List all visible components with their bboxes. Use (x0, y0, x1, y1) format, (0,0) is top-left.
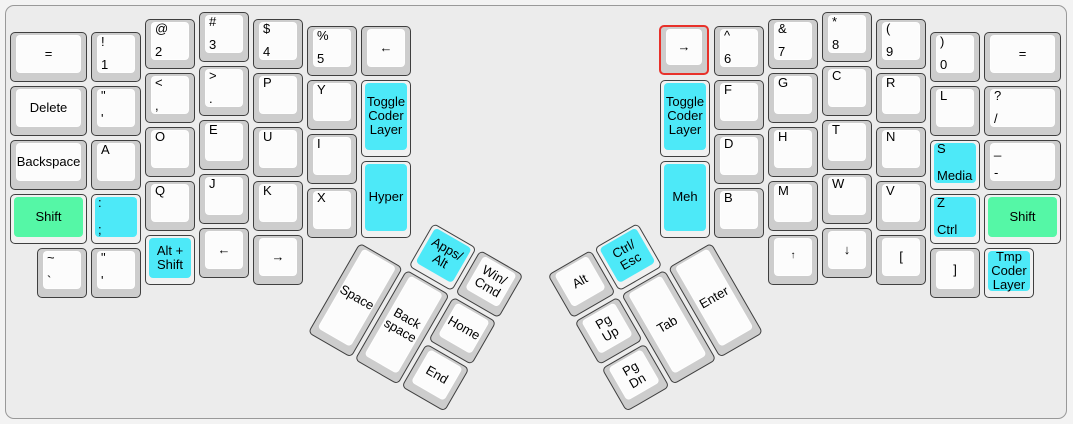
key-s-media[interactable]: SMedia (930, 140, 980, 190)
key-asterisk-8[interactable]: *8 (822, 12, 872, 62)
keycap-surface: R (882, 76, 920, 114)
key-legend: [ (883, 239, 919, 275)
key-legend-bottom: 8 (832, 38, 839, 53)
key-legend-top: V (886, 184, 895, 199)
keycap-surface: M (774, 184, 812, 222)
key-percent-5[interactable]: %5 (307, 26, 357, 76)
key-legend: → (260, 239, 296, 275)
key-legend-top: ( (886, 22, 890, 37)
keycap-surface: N (882, 130, 920, 168)
key-legend-bottom: . (209, 92, 213, 107)
keycap-surface: <, (151, 76, 189, 114)
key-legend: Tmp Coder Layer (988, 251, 1030, 291)
keycap-surface: "' (97, 251, 135, 289)
keycap-surface: B (720, 191, 758, 229)
key-left-arrow-bottom[interactable]: ← (199, 228, 249, 278)
keycap-surface: ← (367, 29, 405, 67)
key-p[interactable]: P (253, 73, 303, 123)
keycap-surface: P (259, 76, 297, 114)
key-legend-top: % (317, 29, 329, 44)
key-legend-top: * (832, 15, 837, 30)
key-legend-top: J (209, 177, 216, 192)
key-legend-top: Z (937, 196, 945, 211)
key-question-slash[interactable]: ?/ (984, 86, 1061, 136)
key-k[interactable]: K (253, 181, 303, 231)
keycap-surface: _- (990, 143, 1055, 181)
key-d[interactable]: D (714, 134, 764, 184)
keycap-surface: A (97, 143, 135, 181)
key-g[interactable]: G (768, 73, 818, 123)
key-l[interactable]: L (930, 86, 980, 136)
key-shift-left[interactable]: Shift (10, 194, 87, 244)
key-legend-top: " (101, 89, 106, 104)
key-h[interactable]: H (768, 127, 818, 177)
key-down-arrow[interactable]: ↓ (822, 228, 872, 278)
keycap-surface: X (313, 191, 351, 229)
keycap-surface: → (666, 29, 702, 65)
keycap-surface: %5 (313, 29, 351, 67)
keycap-surface: T (828, 123, 866, 161)
keycap-surface: C (828, 69, 866, 107)
keycap-surface: J (205, 177, 243, 215)
key-legend-top: U (263, 130, 272, 145)
keycap-surface: @2 (151, 22, 189, 60)
key-legend-top: W (832, 177, 844, 192)
keycap-surface: ↑ (774, 238, 812, 276)
key-legend-top: M (778, 184, 789, 199)
keycap-surface: = (16, 35, 81, 73)
key-equal-left[interactable]: = (10, 32, 87, 82)
key-x[interactable]: X (307, 188, 357, 238)
keycap-surface: ~` (43, 251, 81, 289)
keycap-surface: → (259, 238, 297, 276)
key-m[interactable]: M (768, 181, 818, 231)
keycap-surface: E (205, 123, 243, 161)
keycap-surface: G (774, 76, 812, 114)
key-legend-bottom: - (994, 166, 998, 181)
key-right-arrow-inner[interactable]: → (659, 25, 709, 75)
keycap-surface: Hyper (365, 164, 407, 231)
keycap-surface: Alt + Shift (149, 238, 191, 278)
key-left-arrow-inner[interactable]: ← (361, 26, 411, 76)
keycap-surface: SMedia (934, 143, 976, 183)
keycap-surface: O (151, 130, 189, 168)
key-legend-bottom: Media (937, 169, 972, 184)
keycap-surface: (9 (882, 22, 920, 60)
key-r[interactable]: R (876, 73, 926, 123)
keycap-surface: L (936, 89, 974, 127)
key-legend-top: D (724, 137, 733, 152)
key-legend-bottom: 0 (940, 58, 947, 73)
keycap-surface: = (990, 35, 1055, 73)
key-legend-top: R (886, 76, 895, 91)
key-underscore-dash[interactable]: _- (984, 140, 1061, 190)
key-legend-top: & (778, 22, 787, 37)
key-q[interactable]: Q (145, 181, 195, 231)
key-legend: Toggle Coder Layer (664, 83, 706, 150)
key-backspace[interactable]: Backspace (10, 140, 87, 190)
key-legend-top: ) (940, 35, 944, 50)
keycap-surface: Meh (664, 164, 706, 231)
keycap-surface: [ (882, 238, 920, 276)
key-legend-bottom: Ctrl (937, 223, 957, 238)
key-legend-bottom: ; (98, 223, 102, 238)
key-toggle-coder-layer-left[interactable]: Toggle Coder Layer (361, 80, 411, 157)
key-legend: Alt + Shift (149, 238, 191, 278)
key-equal-right[interactable]: = (984, 32, 1061, 82)
key-legend-top: B (724, 191, 733, 206)
key-legend-top: A (101, 143, 110, 158)
key-w[interactable]: W (822, 174, 872, 224)
key-legend-bottom: 9 (886, 45, 893, 60)
key-z-ctrl[interactable]: ZCtrl (930, 194, 980, 244)
keycap-surface: V (882, 184, 920, 222)
keycap-surface: Y (313, 83, 351, 121)
key-meh[interactable]: Meh (660, 161, 710, 238)
keyboard-layout-canvas: =DeleteBackspaceShift!1"'A:;@2<,OQAlt + … (0, 0, 1073, 424)
key-legend-top: X (317, 191, 326, 206)
key-hash-3[interactable]: #3 (199, 12, 249, 62)
key-paren-9[interactable]: (9 (876, 19, 926, 69)
key-legend-top: I (317, 137, 321, 152)
keycap-surface: I (313, 137, 351, 175)
key-hyper[interactable]: Hyper (361, 161, 411, 238)
keycap-surface: ^6 (720, 29, 758, 67)
key-delete[interactable]: Delete (10, 86, 87, 136)
keycap-surface: >. (205, 69, 243, 107)
keycap-surface: ?/ (990, 89, 1055, 127)
key-legend: ← (206, 232, 242, 268)
key-legend: = (991, 36, 1054, 72)
key-legend-bottom: 7 (778, 45, 785, 60)
key-toggle-coder-layer-right[interactable]: Toggle Coder Layer (660, 80, 710, 157)
key-caret-6[interactable]: ^6 (714, 26, 764, 76)
key-legend-top: ? (994, 89, 1001, 104)
keycap-surface: &7 (774, 22, 812, 60)
key-e[interactable]: E (199, 120, 249, 170)
key-legend-top: ~ (47, 251, 55, 266)
key-legend: Backspace (17, 144, 80, 180)
key-right-bracket[interactable]: ] (930, 248, 980, 298)
key-legend-top: H (778, 130, 787, 145)
key-legend: Shift (14, 197, 83, 237)
keycap-surface: ↓ (828, 231, 866, 269)
key-lessthan-comma[interactable]: <, (145, 73, 195, 123)
key-legend: Meh (664, 164, 706, 231)
key-u[interactable]: U (253, 127, 303, 177)
key-legend-bottom: 5 (317, 52, 324, 67)
key-j[interactable]: J (199, 174, 249, 224)
key-alt-shift[interactable]: Alt + Shift (145, 235, 195, 285)
key-ampersand-7[interactable]: &7 (768, 19, 818, 69)
keycap-surface: $4 (259, 22, 297, 60)
key-legend-bottom: / (994, 112, 998, 127)
key-legend-top: P (263, 76, 272, 91)
key-legend-top: ! (101, 35, 105, 50)
key-o[interactable]: O (145, 127, 195, 177)
key-tmp-coder-layer[interactable]: Tmp Coder Layer (984, 248, 1034, 298)
key-legend: Hyper (365, 164, 407, 231)
keycap-surface: Toggle Coder Layer (664, 83, 706, 150)
key-legend: = (17, 36, 80, 72)
keycap-surface: W (828, 177, 866, 215)
key-legend-bottom: 6 (724, 52, 731, 67)
key-c[interactable]: C (822, 66, 872, 116)
keycap-surface: "' (97, 89, 135, 127)
key-legend-top: @ (155, 22, 168, 37)
key-i[interactable]: I (307, 134, 357, 184)
keycap-surface: ] (936, 251, 974, 289)
keycap-surface: *8 (828, 15, 866, 53)
key-v[interactable]: V (876, 181, 926, 231)
key-t[interactable]: T (822, 120, 872, 170)
key-legend-top: T (832, 123, 840, 138)
key-legend-top: G (778, 76, 788, 91)
key-legend-top: N (886, 130, 895, 145)
key-legend-top: Q (155, 184, 165, 199)
key-legend: ← (368, 30, 404, 66)
key-tilde-grave[interactable]: ~` (37, 248, 87, 298)
key-legend-bottom: ' (101, 112, 103, 127)
key-legend-top: K (263, 184, 272, 199)
key-legend-bottom: 1 (101, 58, 108, 73)
key-legend-top: Y (317, 83, 326, 98)
key-legend-bottom: 2 (155, 45, 162, 60)
keycap-surface: ZCtrl (934, 197, 976, 237)
key-colon-semicolon[interactable]: :; (91, 194, 141, 244)
key-legend: ] (937, 252, 973, 288)
key-legend-top: O (155, 130, 165, 145)
keycap-surface: :; (95, 197, 137, 237)
key-quote-apostrophe-bottom[interactable]: "' (91, 248, 141, 298)
keycap-surface: !1 (97, 35, 135, 73)
key-legend-top: > (209, 69, 217, 84)
key-legend: ↑ (775, 239, 811, 275)
key-legend-bottom: ' (101, 274, 103, 289)
key-right-arrow-bottom[interactable]: → (253, 235, 303, 285)
keycap-surface: ← (205, 231, 243, 269)
keycap-surface: Tmp Coder Layer (988, 251, 1030, 291)
key-legend-bottom: ` (47, 274, 51, 289)
keycap-surface: Shift (14, 197, 83, 237)
key-up-arrow[interactable]: ↑ (768, 235, 818, 285)
key-legend-top: _ (994, 143, 1001, 158)
key-legend-top: : (98, 196, 102, 211)
keycap-surface: D (720, 137, 758, 175)
key-legend-top: F (724, 83, 732, 98)
key-legend-bottom: 4 (263, 45, 270, 60)
key-left-bracket[interactable]: [ (876, 235, 926, 285)
key-a[interactable]: A (91, 140, 141, 190)
key-f[interactable]: F (714, 80, 764, 130)
key-legend-top: < (155, 76, 163, 91)
key-y[interactable]: Y (307, 80, 357, 130)
key-b[interactable]: B (714, 188, 764, 238)
key-at-2[interactable]: @2 (145, 19, 195, 69)
keycap-surface: )0 (936, 35, 974, 73)
key-legend-top: $ (263, 22, 270, 37)
key-exclamation-1[interactable]: !1 (91, 32, 141, 82)
keycap-surface: F (720, 83, 758, 121)
key-paren-0[interactable]: )0 (930, 32, 980, 82)
key-greaterthan-period[interactable]: >. (199, 66, 249, 116)
key-legend-top: E (209, 123, 218, 138)
key-legend-top: L (940, 89, 947, 104)
key-legend: Toggle Coder Layer (365, 83, 407, 150)
keycap-surface: Q (151, 184, 189, 222)
key-legend-top: # (209, 15, 216, 30)
keycap-surface: K (259, 184, 297, 222)
keycap-surface: U (259, 130, 297, 168)
key-legend: → (667, 30, 701, 64)
key-legend-bottom: , (155, 99, 159, 114)
key-quote-apostrophe[interactable]: "' (91, 86, 141, 136)
keycap-surface: Delete (16, 89, 81, 127)
key-legend-top: ^ (724, 29, 730, 44)
key-legend: Shift (988, 197, 1057, 237)
keycap-surface: Toggle Coder Layer (365, 83, 407, 150)
key-shift-right[interactable]: Shift (984, 194, 1061, 244)
key-n[interactable]: N (876, 127, 926, 177)
keycap-surface: Backspace (16, 143, 81, 181)
key-legend-top: S (937, 142, 946, 157)
keycap-surface: Shift (988, 197, 1057, 237)
keycap-surface: #3 (205, 15, 243, 53)
key-legend-top: " (101, 251, 106, 266)
key-legend-top: C (832, 69, 841, 84)
key-legend: Delete (17, 90, 80, 126)
keycap-surface: H (774, 130, 812, 168)
key-legend: ↓ (829, 232, 865, 268)
key-legend-bottom: 3 (209, 38, 216, 53)
key-dollar-4[interactable]: $4 (253, 19, 303, 69)
